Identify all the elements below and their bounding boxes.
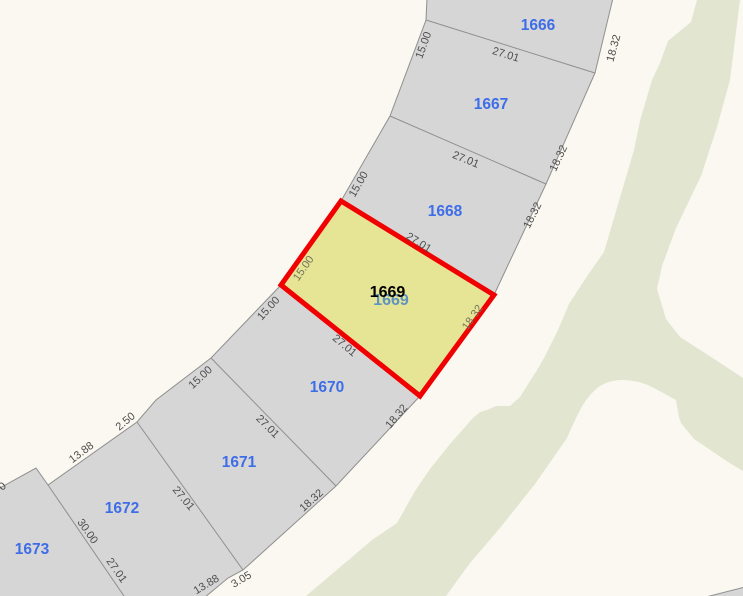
svg-text:1671: 1671: [222, 454, 257, 471]
svg-text:1672: 1672: [105, 500, 139, 517]
svg-text:1668: 1668: [428, 203, 463, 220]
svg-text:1669: 1669: [370, 284, 406, 301]
svg-text:1666: 1666: [521, 17, 556, 34]
svg-text:1667: 1667: [474, 96, 508, 113]
svg-text:1670: 1670: [310, 379, 344, 396]
svg-text:1673: 1673: [15, 541, 50, 558]
